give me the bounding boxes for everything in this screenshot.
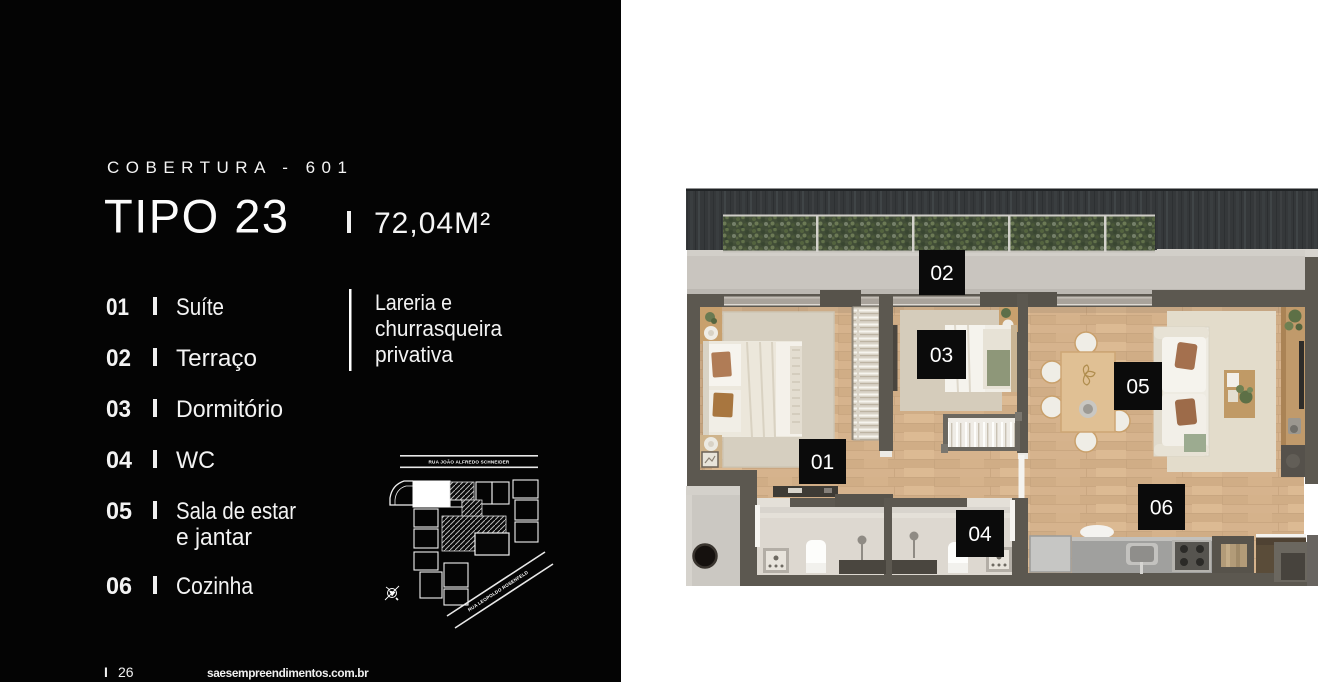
svg-text:WC: WC: [176, 447, 215, 474]
svg-text:Dormitório: Dormitório: [176, 396, 283, 423]
svg-text:I: I: [104, 664, 108, 680]
svg-text:05: 05: [1126, 376, 1149, 399]
svg-text:06: 06: [1150, 497, 1173, 520]
svg-text:03: 03: [106, 396, 131, 423]
svg-text:04: 04: [106, 447, 133, 474]
svg-text:05: 05: [106, 498, 132, 525]
svg-text:72,04M²: 72,04M²: [374, 207, 491, 240]
svg-text:churrasqueira: churrasqueira: [375, 316, 503, 341]
svg-text:03: 03: [930, 344, 953, 367]
svg-text:Sala de estar: Sala de estar: [176, 498, 296, 525]
svg-text:01: 01: [811, 451, 834, 474]
svg-text:privativa: privativa: [375, 342, 454, 367]
svg-text:e jantar: e jantar: [176, 524, 252, 551]
svg-text:Suíte: Suíte: [176, 294, 224, 321]
svg-text:Cozinha: Cozinha: [176, 573, 254, 600]
svg-text:Terraço: Terraço: [176, 345, 257, 372]
svg-text:02: 02: [106, 345, 131, 372]
svg-text:06: 06: [106, 573, 132, 600]
svg-text:COBERTURA - 601: COBERTURA - 601: [107, 158, 353, 177]
svg-text:02: 02: [930, 262, 953, 285]
svg-text:saesempreendimentos.com.br: saesempreendimentos.com.br: [207, 666, 369, 680]
svg-text:04: 04: [968, 523, 992, 546]
svg-text:01: 01: [106, 294, 129, 321]
svg-text:RUA JOÃO ALFREDO SCHNEIDER: RUA JOÃO ALFREDO SCHNEIDER: [429, 459, 510, 465]
svg-text:26: 26: [118, 664, 134, 680]
svg-text:TIPO 23: TIPO 23: [104, 190, 290, 243]
svg-text:Lareria e: Lareria e: [375, 290, 452, 315]
